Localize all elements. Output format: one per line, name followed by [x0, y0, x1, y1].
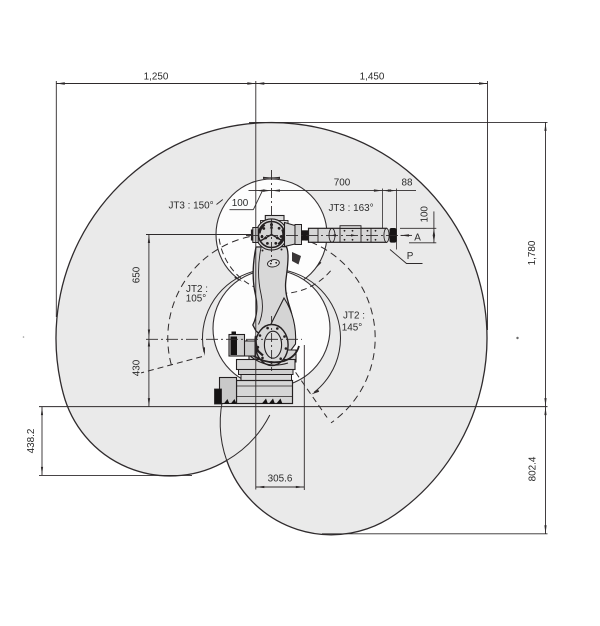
svg-text:JT2 :: JT2 :: [343, 311, 365, 322]
svg-text:1,250: 1,250: [144, 72, 169, 83]
svg-text:650: 650: [132, 266, 143, 283]
svg-text:88: 88: [402, 178, 413, 189]
svg-text:100: 100: [232, 198, 249, 209]
svg-text:100: 100: [420, 206, 431, 223]
svg-text:JT3 : 163°: JT3 : 163°: [328, 203, 373, 214]
svg-text:1,450: 1,450: [360, 72, 385, 83]
svg-text:802.4: 802.4: [527, 456, 538, 481]
svg-text:JT3 : 150°: JT3 : 150°: [168, 201, 213, 212]
svg-text:145°: 145°: [342, 323, 362, 334]
svg-text:A: A: [414, 232, 421, 243]
svg-text:700: 700: [334, 178, 351, 189]
svg-text:438.2: 438.2: [26, 429, 37, 454]
svg-text:305.6: 305.6: [268, 474, 293, 485]
svg-text:1,780: 1,780: [527, 240, 538, 265]
svg-text:105°: 105°: [186, 294, 206, 305]
svg-text:430: 430: [132, 359, 143, 376]
svg-text:P: P: [407, 251, 414, 262]
